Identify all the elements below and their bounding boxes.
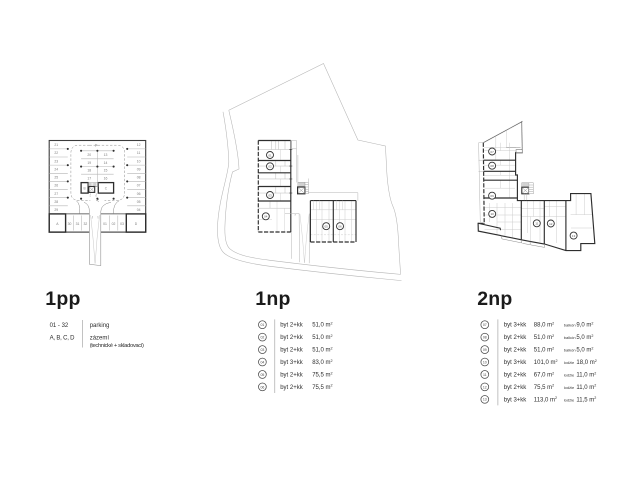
svg-text:byt 3+kk: byt 3+kk [504,397,528,403]
svg-text:67,0 m2: 67,0 m2 [534,371,554,378]
svg-text:(technické + skladovací): (technické + skladovací) [90,343,144,349]
svg-text:18: 18 [87,169,91,173]
svg-text:byt 2+kk: byt 2+kk [280,385,304,391]
svg-text:02: 02 [268,165,272,169]
svg-text:11,5 m2: 11,5 m2 [576,396,596,403]
svg-text:88,0 m2: 88,0 m2 [534,322,554,329]
svg-text:21: 21 [54,143,58,147]
svg-text:24: 24 [54,167,58,171]
svg-text:19: 19 [87,161,91,165]
svg-text:11,0 m2: 11,0 m2 [576,384,596,391]
svg-text:2np: 2np [477,288,512,310]
svg-text:14: 14 [104,161,108,165]
svg-text:13: 13 [104,153,108,157]
svg-text:01 - 32: 01 - 32 [50,323,69,329]
svg-text:B: B [84,186,86,190]
svg-text:04: 04 [260,360,264,364]
svg-text:01: 01 [268,153,272,157]
svg-text:byt 2+kk: byt 2+kk [280,323,304,329]
svg-text:113,0 m2: 113,0 m2 [534,396,557,403]
svg-text:30: 30 [68,222,72,226]
svg-text:18,0 m2: 18,0 m2 [576,359,596,366]
svg-text:byt 2+kk: byt 2+kk [280,348,304,354]
svg-text:balkón: balkón [564,348,576,353]
svg-text:11,0 m2: 11,0 m2 [576,371,596,378]
svg-text:balkón: balkón [564,323,576,328]
svg-text:5,0 m2: 5,0 m2 [576,334,593,341]
svg-text:06: 06 [137,192,141,196]
svg-text:lodžie: lodžie [564,360,575,365]
svg-text:05: 05 [260,373,264,377]
svg-text:31: 31 [76,222,80,226]
svg-text:10: 10 [491,212,495,216]
svg-text:32: 32 [84,222,88,226]
svg-text:08: 08 [137,176,141,180]
svg-text:51,0 m2: 51,0 m2 [312,322,332,329]
svg-text:11: 11 [137,151,141,155]
svg-text:51,0 m2: 51,0 m2 [312,334,332,341]
svg-text:byt 2+kk: byt 2+kk [504,335,528,341]
svg-text:11: 11 [535,222,538,226]
svg-text:5,0 m2: 5,0 m2 [576,346,593,353]
svg-text:10: 10 [137,159,141,163]
svg-text:16: 16 [104,177,108,181]
svg-text:05: 05 [137,200,141,204]
svg-text:balkón: balkón [564,335,576,340]
svg-text:13: 13 [572,234,576,238]
svg-text:9,0 m2: 9,0 m2 [576,322,593,329]
svg-text:parking: parking [90,323,110,329]
svg-text:03: 03 [260,348,264,352]
svg-text:17: 17 [87,177,91,181]
svg-text:09: 09 [137,167,141,171]
svg-text:07: 07 [137,184,141,188]
svg-text:13: 13 [483,398,487,402]
svg-text:byt 2+kk: byt 2+kk [280,372,304,378]
svg-text:lodžie: lodžie [564,372,575,377]
svg-text:byt 2+kk: byt 2+kk [504,372,528,378]
svg-text:03: 03 [268,193,272,197]
svg-text:12: 12 [549,222,553,226]
svg-text:byt 2+kk: byt 2+kk [280,335,304,341]
svg-text:27: 27 [54,192,58,196]
svg-text:15: 15 [104,169,108,173]
svg-text:83,0 m2: 83,0 m2 [312,359,332,366]
svg-text:1pp: 1pp [45,288,80,310]
svg-text:75,5 m2: 75,5 m2 [312,371,332,378]
svg-text:25: 25 [54,176,58,180]
svg-text:29: 29 [54,208,58,212]
svg-text:10: 10 [483,360,487,364]
svg-text:75,5 m2: 75,5 m2 [312,384,332,391]
svg-text:A, B, C, D: A, B, C, D [50,336,76,342]
svg-text:04: 04 [137,208,141,212]
svg-text:01: 01 [103,222,107,226]
svg-text:02: 02 [260,336,264,340]
svg-text:09: 09 [483,348,487,352]
svg-text:22: 22 [54,151,58,155]
svg-text:09: 09 [490,194,494,198]
svg-text:08: 08 [483,336,487,340]
svg-text:26: 26 [54,184,58,188]
svg-text:byt 2+kk: byt 2+kk [504,385,528,391]
svg-text:101,0 m2: 101,0 m2 [534,359,558,366]
svg-text:07: 07 [483,323,487,327]
svg-text:byt 3+kk: byt 3+kk [504,360,528,366]
svg-text:12: 12 [483,385,487,389]
svg-text:01: 01 [260,323,264,327]
svg-text:lodžie: lodžie [564,385,575,390]
svg-text:06: 06 [260,385,264,389]
svg-text:23: 23 [54,159,58,163]
svg-text:05: 05 [325,224,329,228]
svg-text:byt 3+kk: byt 3+kk [280,360,304,366]
svg-text:75,5 m2: 75,5 m2 [534,384,554,391]
svg-text:04: 04 [264,215,268,219]
svg-text:12: 12 [137,143,141,147]
svg-text:1np: 1np [255,288,290,310]
svg-text:28: 28 [54,200,58,204]
svg-text:06: 06 [338,224,342,228]
svg-text:zázemí: zázemí [90,336,110,342]
svg-text:07: 07 [490,150,494,154]
svg-text:03: 03 [120,222,124,226]
svg-text:02: 02 [112,222,116,226]
svg-text:byt 2+kk: byt 2+kk [504,348,528,354]
svg-text:lodžie: lodžie [564,397,575,402]
svg-text:51,0 m2: 51,0 m2 [312,346,332,353]
svg-text:byt 3+kk: byt 3+kk [504,323,528,329]
svg-text:20: 20 [87,153,91,157]
svg-text:11: 11 [483,373,487,377]
svg-text:51,0 m2: 51,0 m2 [534,346,554,353]
svg-text:51,0 m2: 51,0 m2 [534,334,554,341]
svg-text:08: 08 [490,164,494,168]
